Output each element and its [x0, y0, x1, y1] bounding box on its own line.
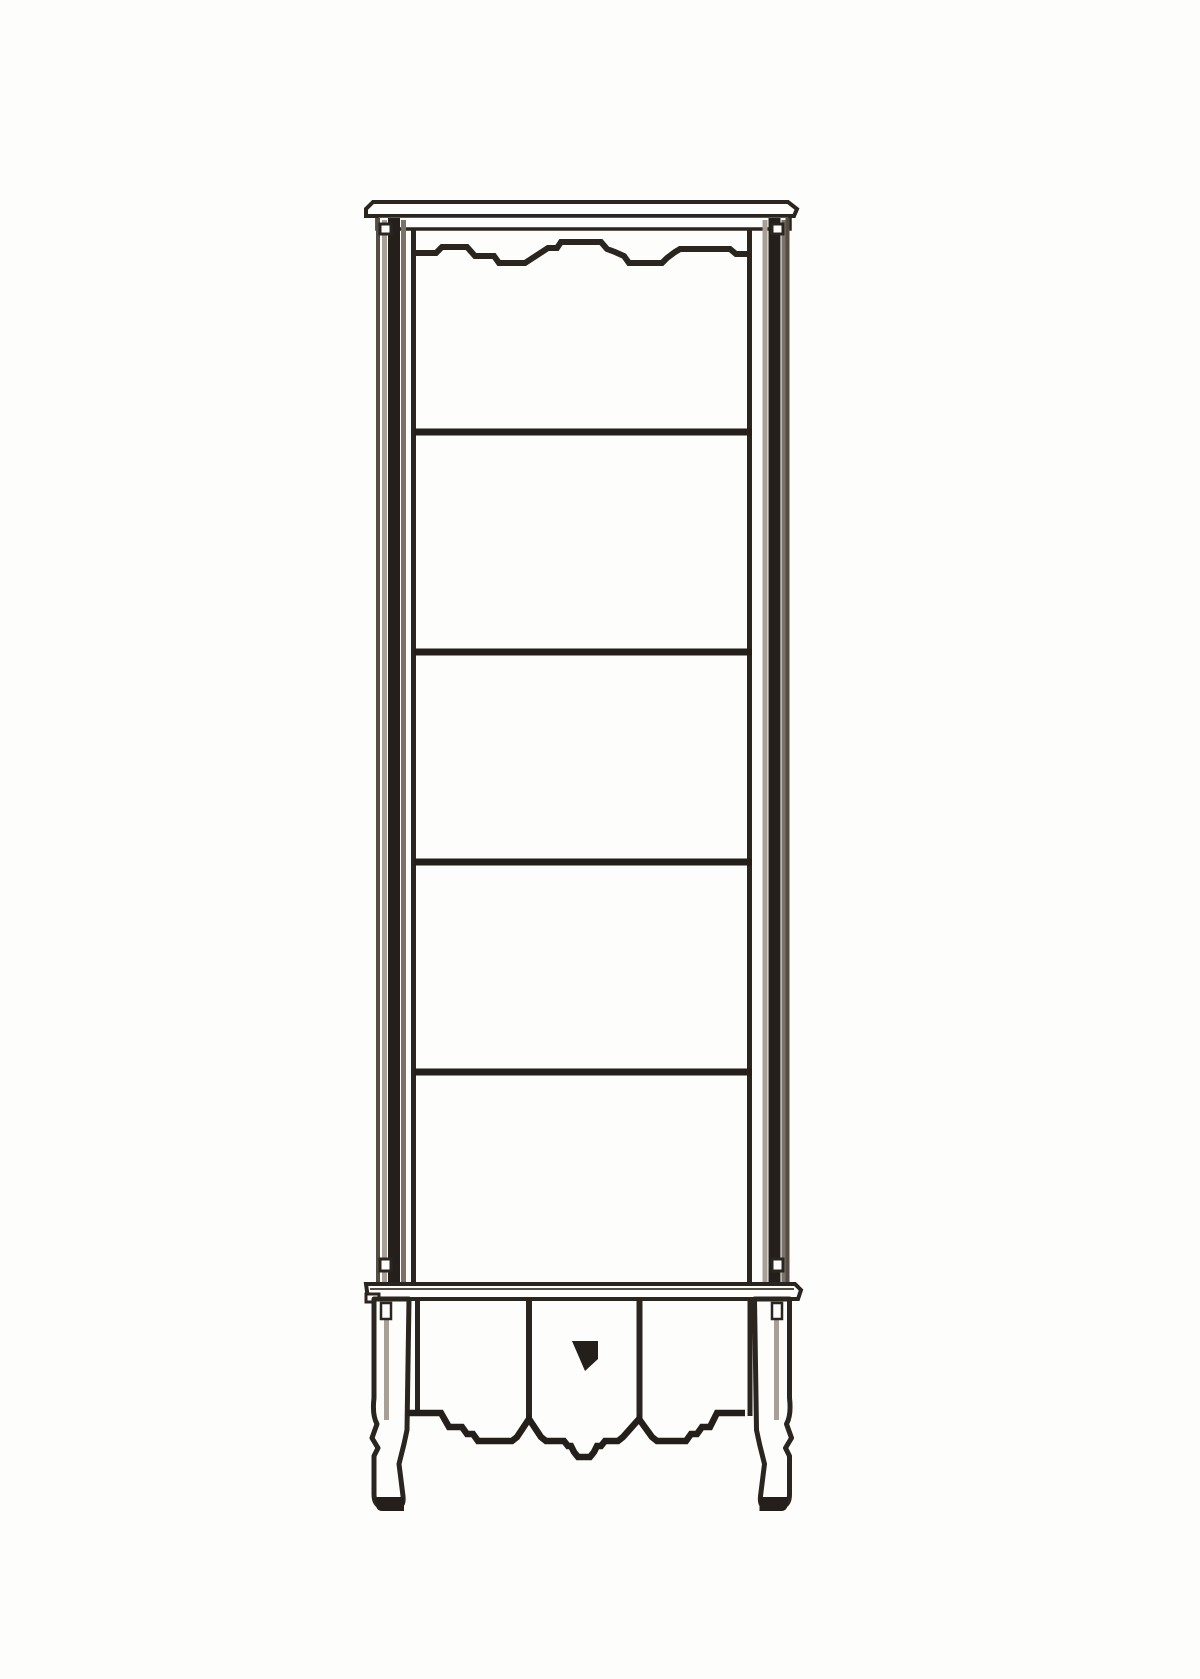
right-leg — [755, 1299, 792, 1511]
left-post — [378, 218, 414, 1286]
drawer-section — [407, 1299, 750, 1457]
left-leg-ring-notch — [381, 1303, 391, 1319]
cornice-lip — [377, 216, 790, 229]
right-post-top-capital-notch — [772, 224, 783, 234]
bottom-apron-scallop — [407, 1413, 745, 1457]
right-post-bottom-capital-notch — [772, 1259, 783, 1271]
page — [0, 0, 1200, 1679]
top-apron-scallop — [416, 242, 750, 263]
right-foot — [760, 1497, 788, 1511]
left-leg-outline — [372, 1299, 409, 1506]
keyhole — [572, 1341, 598, 1371]
left-foot — [376, 1497, 404, 1511]
right-post — [750, 218, 788, 1286]
left-post-top-capital-notch — [380, 224, 391, 234]
waist-rail — [366, 1284, 801, 1302]
furniture-technical-drawing — [0, 0, 1200, 1679]
waist-rail-band — [366, 1284, 801, 1299]
cornice — [366, 202, 797, 229]
etagere-drawing-svg — [0, 0, 1200, 1679]
right-leg-ring-notch — [772, 1303, 782, 1319]
right-leg-outline — [755, 1299, 792, 1506]
left-leg — [372, 1299, 409, 1511]
shelves — [414, 432, 752, 1072]
left-post-bottom-capital-notch — [380, 1259, 391, 1271]
cornice-top-board — [366, 202, 797, 216]
